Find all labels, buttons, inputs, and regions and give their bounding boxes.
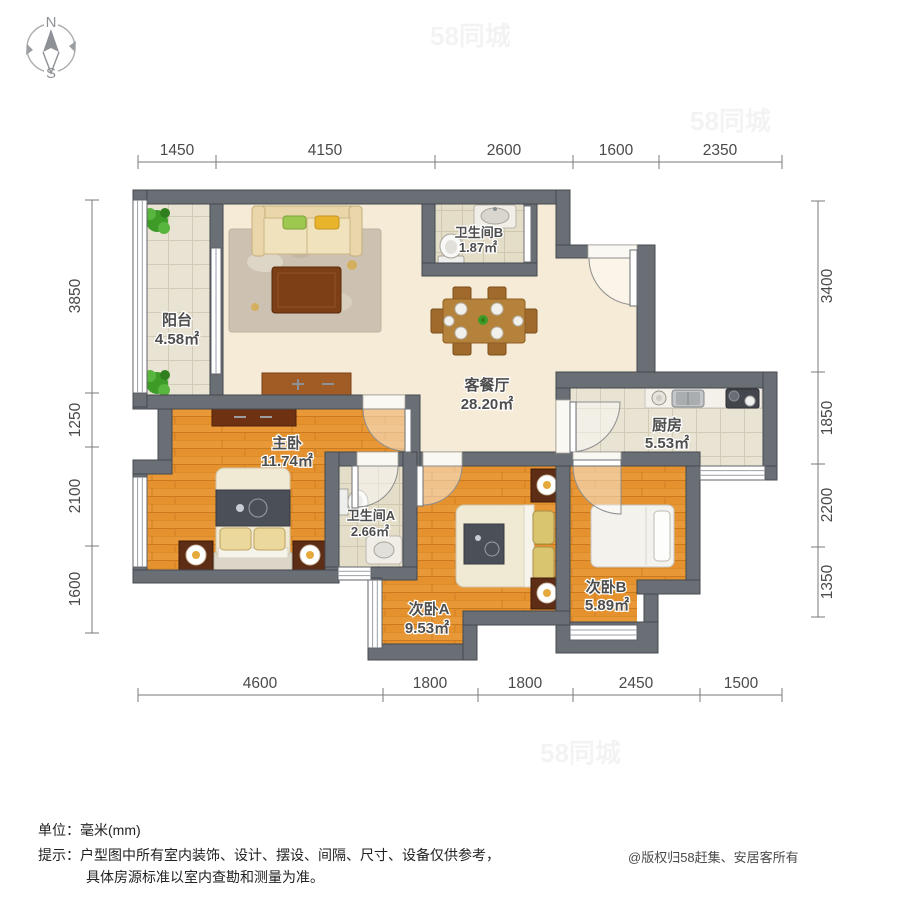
bed-master	[214, 468, 292, 570]
dimension-right: 3400 1850 2200 1350	[811, 201, 836, 617]
sofa	[252, 206, 362, 256]
dresser	[212, 409, 296, 426]
room-label-bathroom-a: 卫生间A	[347, 508, 396, 523]
dim-left-2: 1250	[67, 402, 84, 437]
room-area-kitchen: 5.53㎡	[645, 434, 689, 452]
master-window	[133, 477, 147, 567]
floor-plan: 58同城 58同城 58同城 58同城 N S	[0, 0, 900, 815]
dim-top-5: 2350	[703, 142, 738, 159]
balcony-floor	[147, 204, 210, 395]
room-area-master: 11.74㎡	[261, 452, 313, 470]
room-label-bathroom-b: 卫生间B	[455, 225, 503, 240]
dim-right-3: 2200	[819, 487, 836, 522]
compass-arrow-west	[26, 44, 33, 55]
nightstand	[293, 541, 327, 570]
room-label-bedroom-a: 次卧A	[409, 600, 450, 618]
dim-left-3: 2100	[67, 478, 84, 513]
room-area-bathroom-a: 2.66㎡	[351, 524, 389, 539]
dim-top-4: 1600	[599, 142, 634, 159]
dim-bottom-2: 1800	[413, 675, 448, 692]
room-label-kitchen: 厨房	[652, 416, 682, 434]
unit-note: 单位：毫米(mm)	[38, 820, 141, 840]
dim-top-2: 4150	[308, 142, 343, 159]
tip-line-1: 提示：户型图中所有室内装饰、设计、摆设、间隔、尺寸、设备仅供参考，	[38, 845, 500, 865]
compass-needle-north	[43, 29, 59, 52]
balcony-window	[133, 200, 147, 393]
room-label-bedroom-b: 次卧B	[586, 578, 627, 596]
dim-top-3: 2600	[487, 142, 522, 159]
room-label-master: 主卧	[272, 434, 302, 452]
copyright-notice: @版权归58赶集、安居客所有	[628, 847, 799, 866]
room-area-bedroom-a: 9.53㎡	[405, 619, 449, 637]
dim-right-1: 3400	[819, 268, 836, 303]
dimension-left: 3850 1250 2100 1600	[67, 200, 99, 633]
compass: N S	[26, 14, 76, 82]
coffee-table	[272, 267, 341, 313]
bathroom-a-window	[338, 567, 371, 580]
dim-bottom-3: 1800	[508, 675, 543, 692]
compass-south-label: S	[46, 65, 56, 82]
room-label-living: 客餐厅	[463, 376, 509, 394]
tv-cabinet	[262, 373, 351, 396]
kitchen-counter	[645, 388, 762, 408]
balcony-glass-door	[211, 248, 221, 374]
bed-b	[591, 505, 674, 567]
room-area-living: 28.20㎡	[461, 395, 514, 413]
tip-line-2: 具体房源标准以室内查勘和测量为准。	[86, 867, 324, 887]
dim-left-4: 1600	[67, 571, 84, 606]
bathroom-b-door	[524, 206, 531, 262]
room-area-bathroom-b: 1.87㎡	[459, 240, 497, 255]
dimension-top: 1450 4150 2600 1600 2350	[138, 142, 782, 169]
bedroom-a-window	[368, 580, 382, 648]
dimension-bottom: 4600 1800 1800 2450 1500	[138, 675, 782, 702]
watermark-text: 58同城	[430, 21, 511, 51]
dim-left-1: 3850	[67, 278, 84, 313]
room-label-balcony: 阳台	[162, 311, 192, 329]
dim-bottom-1: 4600	[243, 675, 278, 692]
nightstand	[179, 541, 213, 570]
watermark-text: 58同城	[540, 738, 621, 768]
pillow-green	[283, 216, 306, 229]
room-area-balcony: 4.58㎡	[155, 330, 199, 348]
dim-right-2: 1850	[819, 400, 836, 435]
room-area-bedroom-b: 5.89㎡	[585, 596, 629, 614]
compass-north-label: N	[46, 14, 57, 31]
watermark-text: 58同城	[690, 106, 771, 136]
pillow-yellow	[315, 216, 339, 229]
dim-right-4: 1350	[819, 564, 836, 599]
bathroom-a-sink	[366, 536, 402, 564]
compass-arrow-east	[69, 41, 76, 52]
dim-bottom-4: 2450	[619, 675, 654, 692]
kitchen-window	[700, 466, 765, 480]
bedroom-b-window	[570, 625, 637, 640]
dim-top-1: 1450	[160, 142, 195, 159]
dim-bottom-5: 1500	[724, 675, 759, 692]
